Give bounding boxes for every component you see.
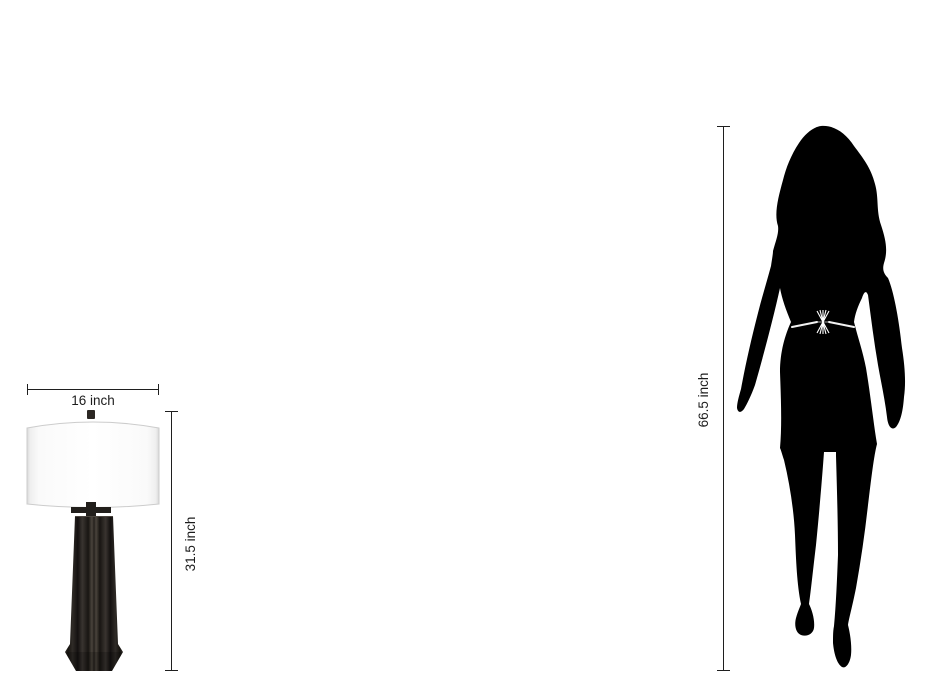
woman-silhouette-shape	[737, 126, 905, 667]
table-lamp-image	[20, 405, 180, 675]
woman-silhouette-image	[730, 118, 910, 674]
lamp-shade	[27, 422, 159, 508]
lamp-finial	[87, 410, 95, 419]
person-height-label: 66.5 inch	[696, 350, 712, 450]
person-height-dimension-line	[723, 126, 724, 671]
lamp-column-base	[65, 516, 123, 671]
person-height-top-cap	[717, 126, 730, 127]
product-dimension-diagram: 16 inch	[0, 0, 933, 700]
lamp-width-left-cap	[27, 384, 28, 395]
lamp-base-bevel	[65, 652, 123, 671]
lamp-height-dimension-line	[171, 411, 172, 671]
lamp-height-bottom-cap	[165, 670, 178, 671]
lamp-height-top-cap	[165, 411, 178, 412]
lamp-height-label: 31.5 inch	[183, 494, 199, 594]
person-height-bottom-cap	[717, 670, 730, 671]
lamp-width-right-cap	[158, 384, 159, 395]
lamp-width-dimension-line	[27, 389, 159, 390]
